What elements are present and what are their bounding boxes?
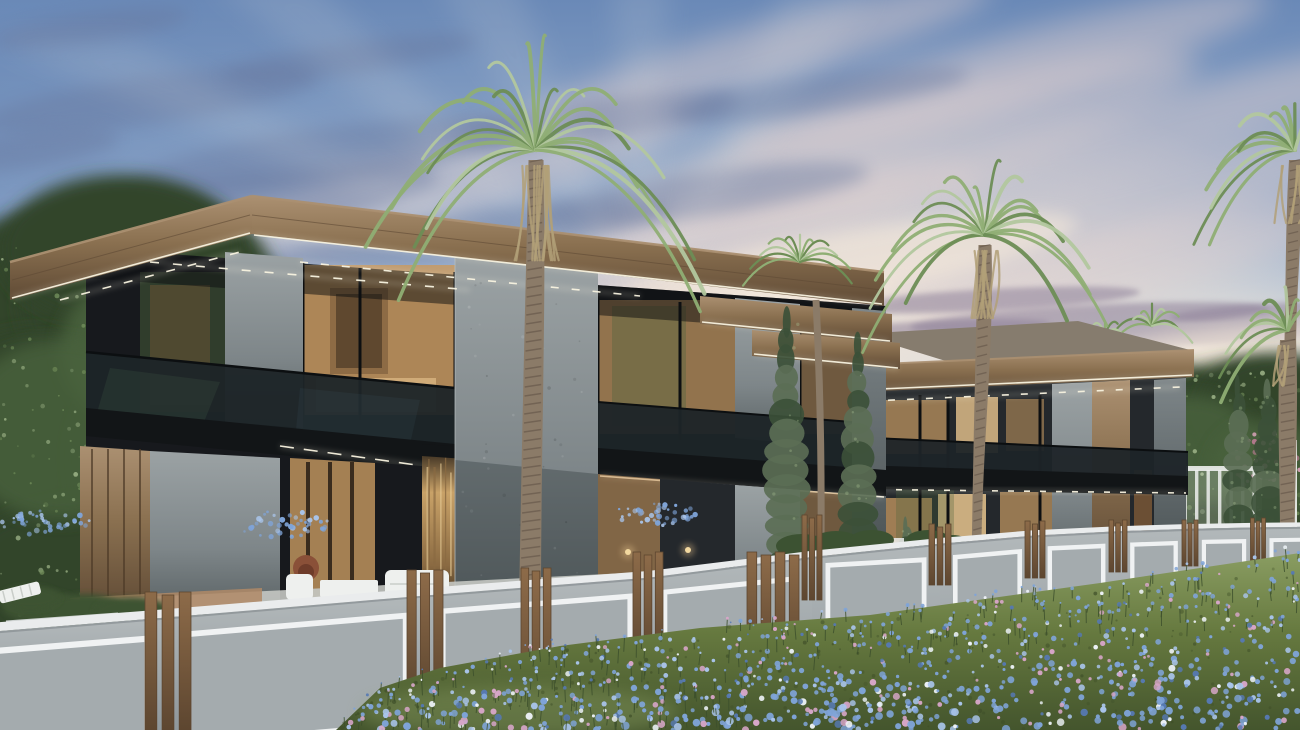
flower <box>1130 720 1137 727</box>
flower <box>757 665 760 668</box>
flower <box>834 671 837 674</box>
leaf-speckle <box>46 440 50 444</box>
flower <box>634 641 637 644</box>
flower <box>377 703 382 708</box>
flower <box>965 637 968 640</box>
flower <box>819 708 824 713</box>
flower <box>1218 724 1222 728</box>
flower <box>1040 701 1043 704</box>
flower-dot <box>655 520 661 526</box>
flower <box>552 677 555 680</box>
flower <box>1210 594 1215 599</box>
leaf-speckle <box>1218 385 1221 388</box>
flower <box>1169 649 1174 654</box>
flower <box>747 633 749 635</box>
flower-stem <box>891 622 892 637</box>
flower <box>553 656 558 661</box>
flower <box>775 637 778 640</box>
flower <box>901 655 904 658</box>
flower <box>1236 683 1243 690</box>
flower <box>981 665 984 668</box>
flower <box>903 645 906 648</box>
flower <box>783 632 785 634</box>
flower <box>1156 699 1162 705</box>
flower <box>954 632 959 637</box>
flower <box>529 644 531 646</box>
flower <box>1196 638 1201 643</box>
grass-speckle <box>1087 702 1090 705</box>
flower <box>538 704 545 711</box>
flower <box>1193 577 1197 581</box>
flower <box>524 644 526 646</box>
grass-speckle <box>414 681 417 684</box>
flower <box>346 725 351 730</box>
flower <box>530 659 532 661</box>
flower <box>1107 639 1111 643</box>
trellis-slat <box>1207 470 1210 526</box>
flower <box>1252 639 1257 644</box>
flower <box>953 724 957 728</box>
flower <box>408 688 412 692</box>
flower <box>1143 656 1146 659</box>
flower <box>1122 582 1125 585</box>
flower <box>492 689 496 693</box>
flower <box>761 618 763 620</box>
flower <box>361 712 365 716</box>
flower <box>1100 602 1103 605</box>
flower-dot <box>326 519 329 522</box>
leaf-speckle <box>13 472 15 474</box>
leaf-speckle <box>62 409 64 411</box>
flower <box>959 686 965 692</box>
flower <box>612 716 618 722</box>
flower <box>1150 574 1152 576</box>
flower <box>877 641 881 645</box>
wood-post <box>937 527 943 585</box>
flower <box>736 681 740 685</box>
flower <box>1109 680 1114 685</box>
flower <box>926 630 929 633</box>
flower-dot <box>79 521 84 526</box>
flower <box>1058 666 1063 671</box>
flower <box>394 709 400 715</box>
flower <box>1195 676 1200 681</box>
grass-speckle <box>1179 632 1183 636</box>
flower-dot <box>83 523 88 528</box>
villa-dusk-scene <box>0 0 1300 730</box>
flower <box>1205 564 1209 568</box>
flower <box>629 676 633 680</box>
flower <box>1206 652 1210 656</box>
flower <box>441 710 447 716</box>
flower <box>777 716 783 722</box>
grass-speckle <box>1088 646 1091 649</box>
flower <box>1291 571 1295 575</box>
flower <box>1224 608 1227 611</box>
flower <box>1040 712 1043 715</box>
flower-dot <box>27 532 32 537</box>
leaf-speckle <box>4 268 8 272</box>
wood-post <box>1025 521 1030 578</box>
flower <box>846 721 853 728</box>
flower <box>739 673 743 677</box>
flower <box>938 632 942 636</box>
flower <box>820 610 823 613</box>
flower-dot <box>688 506 693 511</box>
flower <box>1048 660 1055 667</box>
flower <box>691 708 695 712</box>
leaf-speckle <box>52 367 57 372</box>
leaf-speckle <box>73 472 78 477</box>
grass-speckle <box>927 725 929 727</box>
flower <box>782 689 785 692</box>
flower <box>1283 545 1287 549</box>
flower <box>864 625 867 628</box>
flower <box>657 720 665 728</box>
flower <box>815 642 819 646</box>
stone-texture <box>554 438 557 441</box>
flower <box>1201 561 1205 565</box>
flower <box>1128 592 1131 595</box>
flower <box>452 678 455 681</box>
flower <box>882 662 886 666</box>
flower <box>712 659 716 663</box>
flower <box>511 691 515 695</box>
grass-speckle <box>697 640 699 642</box>
flower <box>913 698 919 704</box>
flower <box>1255 679 1260 684</box>
flower <box>1097 601 1100 604</box>
flower <box>851 625 856 630</box>
flower <box>908 682 912 686</box>
leaf-speckle <box>61 493 65 497</box>
wood-post <box>1251 518 1255 562</box>
flower <box>1038 670 1043 675</box>
stone-texture <box>479 323 481 325</box>
stone-texture <box>555 303 557 305</box>
flower <box>503 702 506 705</box>
flower <box>579 718 584 723</box>
flower <box>994 611 997 614</box>
grass-speckle <box>967 686 969 688</box>
flower-dot <box>683 515 686 518</box>
flower-dot <box>259 534 262 537</box>
stone-texture <box>561 455 563 457</box>
grass-speckle <box>1111 699 1115 703</box>
grass-speckle <box>973 625 975 627</box>
flower <box>606 678 611 683</box>
flower-stem <box>1187 621 1188 636</box>
flower <box>1227 703 1233 709</box>
flower <box>747 684 750 687</box>
flower <box>1247 565 1250 568</box>
flower <box>392 688 395 691</box>
flower <box>1103 633 1109 639</box>
flower <box>366 693 369 696</box>
stone-texture <box>468 306 471 309</box>
flower <box>828 713 832 717</box>
flower <box>1238 725 1243 730</box>
flower <box>1211 687 1218 694</box>
flower <box>1247 623 1252 628</box>
flower <box>799 668 804 673</box>
flower <box>973 600 977 604</box>
flower <box>1136 613 1139 616</box>
flower <box>379 698 383 702</box>
flower <box>1144 627 1148 631</box>
grass-speckle <box>1028 666 1031 669</box>
flower <box>590 678 593 681</box>
flower <box>1036 663 1043 670</box>
grass-speckle <box>646 681 649 684</box>
flower <box>1139 590 1143 594</box>
flower <box>1084 605 1088 609</box>
flower <box>858 643 862 647</box>
flower <box>1176 651 1180 655</box>
flower <box>1075 614 1077 616</box>
wood-post <box>945 524 951 585</box>
flower <box>1077 609 1081 613</box>
flower-dot <box>13 517 15 519</box>
flower <box>735 643 738 646</box>
flower <box>1223 649 1229 655</box>
flower <box>1214 611 1217 614</box>
flower <box>421 669 423 671</box>
flower <box>1221 626 1225 630</box>
flower <box>789 649 794 654</box>
flower <box>908 687 911 690</box>
stone-texture <box>559 443 562 446</box>
flower <box>563 686 567 690</box>
flower <box>1285 647 1291 653</box>
flower <box>1272 579 1277 584</box>
stone-texture <box>573 378 576 381</box>
flower <box>814 677 819 682</box>
grass-speckle <box>1148 589 1151 592</box>
flower-dot <box>640 521 643 524</box>
stone-texture <box>581 391 583 393</box>
flower <box>387 688 390 691</box>
flower <box>881 697 886 702</box>
flower <box>362 706 365 709</box>
flower <box>1141 679 1145 683</box>
flower <box>1034 634 1038 638</box>
flower <box>398 698 401 701</box>
flower <box>966 718 972 724</box>
flower <box>1111 627 1115 631</box>
flower-dot <box>667 508 670 511</box>
flower <box>1064 687 1070 693</box>
grass-speckle <box>492 717 494 719</box>
flower-dot <box>268 521 273 526</box>
flower <box>711 695 715 699</box>
flower <box>1038 588 1041 591</box>
fence-frame <box>0 639 147 730</box>
flower <box>783 657 786 660</box>
flower <box>432 689 436 693</box>
flower <box>1117 671 1123 677</box>
leaf-speckle <box>1187 443 1190 446</box>
grass-speckle <box>1207 657 1209 659</box>
flower-dot <box>248 525 254 531</box>
flower <box>599 656 604 661</box>
flower <box>797 699 803 705</box>
leaf-speckle <box>75 578 77 580</box>
flower <box>999 685 1003 689</box>
flower <box>1159 706 1164 711</box>
flower <box>870 647 872 649</box>
flower <box>736 717 740 721</box>
flower-dot <box>300 510 305 515</box>
flower <box>607 641 610 644</box>
flower <box>882 675 887 680</box>
flower <box>563 714 570 721</box>
flower <box>1035 680 1038 683</box>
flower <box>902 693 906 697</box>
flower-dot <box>269 534 274 539</box>
flower <box>918 609 921 612</box>
grass-speckle <box>1234 577 1237 580</box>
flower <box>450 690 454 694</box>
flower <box>659 678 664 683</box>
flower <box>552 643 554 645</box>
architectural-rendering <box>0 0 1300 730</box>
stone-texture <box>576 572 578 574</box>
flower <box>883 633 886 636</box>
flower <box>773 616 777 620</box>
flower <box>639 701 645 707</box>
flower <box>348 720 353 725</box>
flower <box>1143 649 1148 654</box>
trellis-slat <box>1195 470 1198 526</box>
flower <box>1265 662 1268 665</box>
flower-dot <box>653 503 655 505</box>
flower <box>764 683 767 686</box>
flower <box>1046 620 1049 623</box>
flower <box>485 660 488 663</box>
stone-texture <box>543 466 545 468</box>
flower <box>606 660 610 664</box>
flower <box>1240 716 1243 719</box>
flower <box>886 612 890 616</box>
flower <box>1043 607 1046 610</box>
flower <box>1174 579 1176 581</box>
flower <box>578 672 582 676</box>
flower <box>794 623 796 625</box>
grass-speckle <box>541 691 545 695</box>
flower <box>1257 597 1260 600</box>
flower-dot <box>628 513 631 516</box>
flower <box>918 701 922 705</box>
flower <box>809 654 813 658</box>
grass-speckle <box>650 671 653 674</box>
flower <box>1044 655 1050 661</box>
flower <box>975 699 980 704</box>
flower <box>777 689 781 693</box>
flower <box>1072 659 1075 662</box>
flower <box>717 715 722 720</box>
flower-dot <box>656 514 659 517</box>
flower <box>493 662 496 665</box>
flower <box>1150 657 1154 661</box>
leaf-speckle <box>2 403 5 406</box>
flower <box>1077 620 1080 623</box>
flower <box>502 691 507 696</box>
flower <box>800 633 803 636</box>
flower <box>515 689 519 693</box>
flower <box>830 693 834 697</box>
flower <box>535 666 539 670</box>
grass-speckle <box>968 696 972 700</box>
flower <box>694 667 698 671</box>
flower <box>1225 696 1228 699</box>
leaf-speckle <box>1193 449 1197 453</box>
flower <box>1107 610 1111 614</box>
flower <box>692 682 696 686</box>
flower <box>1178 606 1181 609</box>
flower <box>623 634 626 637</box>
leaf-speckle <box>12 359 16 363</box>
flower <box>619 715 626 722</box>
flower <box>693 719 701 727</box>
leaf-speckle <box>55 510 58 513</box>
flower <box>983 644 987 648</box>
flower <box>586 723 589 726</box>
flower <box>1010 692 1015 697</box>
flower <box>1234 660 1239 665</box>
flower <box>1222 710 1230 718</box>
flower <box>1167 690 1171 694</box>
flower <box>990 654 995 659</box>
leaf-speckle <box>2 433 6 437</box>
flower <box>458 720 464 726</box>
flower <box>760 634 764 638</box>
flower-dot <box>684 508 688 512</box>
fence-post-cluster <box>1182 520 1198 566</box>
leaf-speckle <box>16 536 21 541</box>
flower <box>1193 593 1198 598</box>
flower <box>1074 642 1078 646</box>
flower <box>785 626 789 630</box>
flower <box>597 645 601 649</box>
flower <box>1100 641 1105 646</box>
flower <box>1270 658 1274 662</box>
flower <box>976 679 979 682</box>
flower <box>643 648 646 651</box>
grass-speckle <box>1172 630 1174 632</box>
flower-dot <box>3 525 6 528</box>
flower-dot <box>256 516 262 522</box>
stone-texture <box>579 340 581 342</box>
flower <box>1002 668 1005 671</box>
flower <box>1281 691 1287 697</box>
flower <box>794 654 797 657</box>
flower <box>1169 593 1174 598</box>
flower <box>1132 628 1136 632</box>
grass-speckle <box>1093 592 1097 596</box>
flower <box>1051 636 1056 641</box>
flower <box>679 680 683 684</box>
flower <box>1270 624 1272 626</box>
flower-dot <box>12 521 15 524</box>
flower-dot <box>620 518 625 523</box>
flower <box>1117 602 1122 607</box>
flower <box>555 673 557 675</box>
flower <box>863 697 868 702</box>
flower <box>757 676 762 681</box>
flower <box>1109 665 1112 668</box>
table-lamp <box>625 549 631 555</box>
